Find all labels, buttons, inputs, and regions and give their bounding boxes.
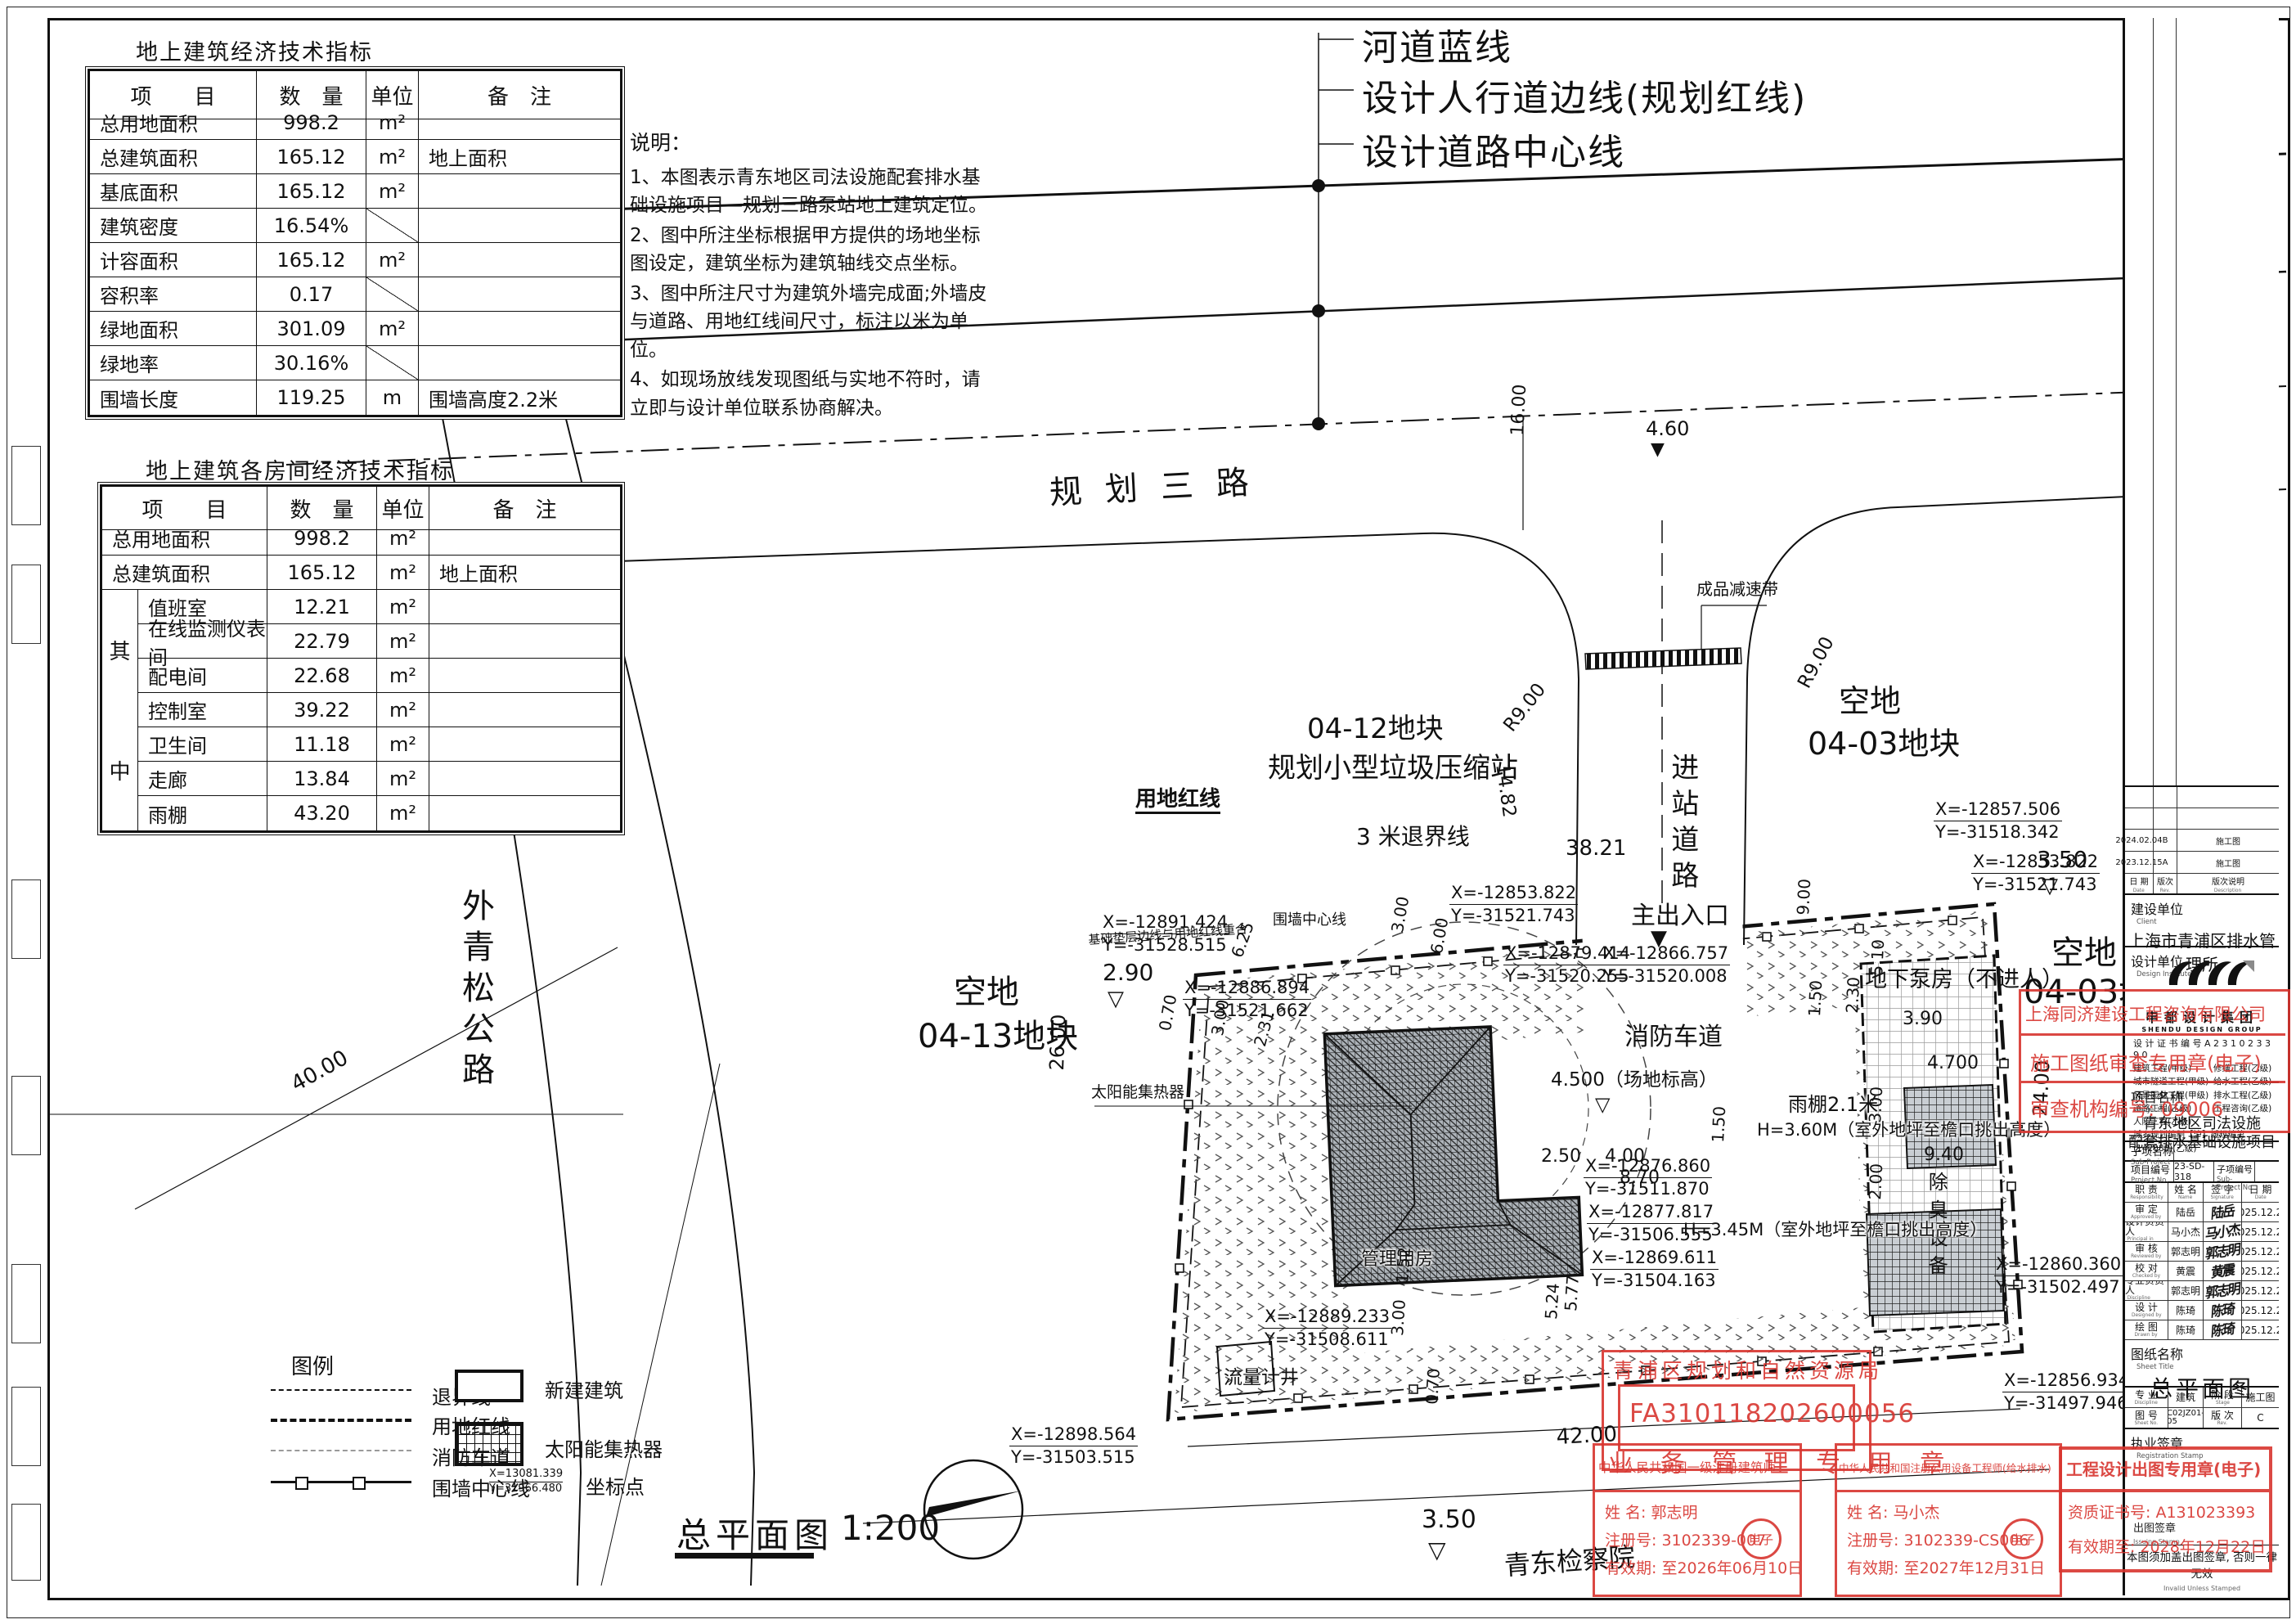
personnel-date: 2025.12.29	[2242, 1281, 2279, 1300]
line-label: 设计道路中心线	[1362, 123, 1625, 175]
table-cell: 绿地率	[90, 346, 257, 380]
mep-valid: 有效期: 至2027年12月31日	[1847, 1556, 2045, 1578]
personnel-role: 设 计Designed by	[2125, 1301, 2168, 1320]
group-cell: 其中	[102, 590, 138, 830]
table-cell: 总用地面积	[102, 521, 267, 556]
mep-header: 中华人民共和国注册公用设备工程师(给水排水)	[1839, 1460, 2051, 1475]
table-cell	[419, 174, 620, 209]
table-cell: m²	[377, 796, 429, 830]
revision-rev: A	[2154, 852, 2177, 873]
client-section: 建设单位 Client 上海市青浦区排水管理所	[2125, 895, 2279, 947]
personnel-row: 审 核Reviewed by郭志明郭志明2025.12.29	[2125, 1242, 2279, 1262]
revision-desc: 施工图	[2177, 830, 2279, 851]
legend-label: 坐标点	[586, 1471, 645, 1500]
line-label: 设计人行道边线(规划红线)	[1362, 69, 1807, 121]
table-cell: 雨棚	[138, 796, 267, 830]
revision-row: 2023.12.15A施工图	[2125, 852, 2279, 874]
legend-line-dashedgray	[271, 1450, 411, 1451]
signature-scribble: 陈琦	[2211, 1302, 2235, 1318]
table-cell	[366, 346, 419, 380]
drawing-title: 总平面图	[676, 1508, 833, 1558]
table-cell: 地上面积	[429, 556, 620, 590]
revision-date: 2024.02.04	[2125, 830, 2154, 851]
table-cell	[429, 727, 620, 762]
personnel-name: 黄震	[2168, 1262, 2204, 1280]
personnel-signature: 郭志明	[2204, 1281, 2242, 1300]
table-cell: m²	[377, 521, 429, 556]
review-company: 上海同济建设工程咨询有限公司	[2025, 1001, 2266, 1026]
review-title: 施工图纸审查专用章(电子)	[2030, 1047, 2262, 1076]
signature-scribble: 郭志明	[2205, 1242, 2240, 1260]
note-item: 1、本图表示青东地区司法设施配套排水基础设施项目—规划三路泵站地上建筑定位。	[630, 164, 988, 220]
table-cell: 总用地面积	[90, 106, 257, 140]
legend-line-dashdot2	[271, 1419, 411, 1422]
personnel-row: 设计负责人Principal in charge马小杰马小杰2025.12.29	[2125, 1222, 2279, 1242]
revision-row-empty	[2125, 787, 2279, 808]
table-cell: 卫生间	[138, 727, 267, 762]
output-seal-cert: 资质证书号: A131023393	[2068, 1500, 2255, 1523]
table-cell: 绿地面积	[90, 312, 257, 346]
signature-scribble: 黄震	[2211, 1262, 2235, 1279]
table-cell: 总建筑面积	[102, 556, 267, 590]
table-cell	[366, 209, 419, 243]
sheet-title-section: 图纸名称 Sheet Title 总平面图	[2125, 1340, 2279, 1388]
table-cell: 围墙高度2.2米	[419, 380, 620, 415]
personnel-row: 审 定Approved by陆岳陆岳2025.12.29	[2125, 1203, 2279, 1222]
table-cell: m²	[377, 556, 429, 590]
review-number: 审查机构编号: 09006	[2030, 1093, 2223, 1122]
table-cell: 165.12	[267, 556, 377, 590]
legend-swatch-building	[455, 1370, 523, 1402]
entrance-paving	[1582, 906, 1746, 1064]
table-cell: 总建筑面积	[90, 140, 257, 174]
table-cell	[419, 277, 620, 312]
personnel-date: 2025.12.29	[2242, 1222, 2279, 1241]
note-item: 2、图中所注坐标根据甲方提供的场地坐标图设定，建筑坐标为建筑轴线交点坐标。	[630, 222, 988, 278]
revision-header: 日 期Date 版次Rev. 版次说明Description	[2125, 874, 2279, 895]
signature-scribble: 郭志明	[2205, 1281, 2240, 1299]
table-cell: 301.09	[257, 312, 366, 346]
table-cell: 围墙长度	[90, 380, 257, 415]
note-item: 3、图中所注尺寸为建筑外墙完成面;外墙皮与道路、用地红线间尺寸，标注以米为单位。	[630, 280, 988, 365]
personnel-name: 郭志明	[2168, 1242, 2204, 1261]
table-cell: m²	[377, 762, 429, 796]
table-cell: 13.84	[267, 762, 377, 796]
personnel-row: 专业负责人Discipline Responsible郭志明郭志明2025.12…	[2125, 1281, 2279, 1301]
left-road-curves	[49, 245, 754, 1586]
table-cell: 16.54%	[257, 209, 366, 243]
architect-header: 中华人民共和国一级注册建筑师	[1598, 1458, 1776, 1476]
table-cell: m²	[377, 693, 429, 727]
planning-agency: 青浦区规划和自然资源局	[1613, 1355, 1883, 1384]
table-cell: 165.12	[257, 140, 366, 174]
personnel-date: 2025.12.29	[2242, 1203, 2279, 1221]
table-cell: 43.20	[267, 796, 377, 830]
legend-label: 新建建筑	[545, 1374, 623, 1403]
line-label: 河道蓝线	[1362, 18, 1512, 70]
personnel-role: 审 核Reviewed by	[2125, 1242, 2168, 1261]
personnel-row: 绘 图Drawn by陈琦陈琦2025.12.29	[2125, 1320, 2279, 1340]
table-cell	[429, 624, 620, 659]
drawing-sheet: 地上建筑经济技术指标 项 目数 量单位备 注总用地面积998.2m²总建筑面积1…	[0, 0, 2296, 1624]
table-cell: 地上面积	[419, 140, 620, 174]
table-cell	[429, 590, 620, 624]
signature-scribble: 马小杰	[2205, 1222, 2240, 1240]
table-cell: 配电间	[138, 659, 267, 693]
revision-row-empty	[2125, 808, 2279, 830]
fence-post-icon	[353, 1477, 366, 1490]
table-cell: m²	[377, 590, 429, 624]
table-cell: 39.22	[267, 693, 377, 727]
room-table: 项 目数 量单位备 注总用地面积998.2m²总建筑面积165.12m²地上面积…	[100, 484, 622, 833]
personnel-name: 陆岳	[2168, 1203, 2204, 1221]
table-cell: 12.21	[267, 590, 377, 624]
personnel-header-cell: 职 责Responsibility	[2125, 1183, 2168, 1202]
personnel-role: 设计负责人Principal in charge	[2125, 1222, 2168, 1241]
output-seal-title: 工程设计出图专用章(电子)	[2066, 1456, 2261, 1480]
project-no-section: 项目编号Project No. 23-SD-318 子项编号Sub-Projec…	[2125, 1162, 2279, 1183]
revision-row: 2024.02.04B施工图	[2125, 830, 2279, 852]
note-item: 4、如现场放线发现图纸与实地不符时，请立即与设计单位联系协商解决。	[630, 366, 988, 422]
table-cell: 走廊	[138, 762, 267, 796]
signature-scribble: 陆岳	[2211, 1203, 2235, 1220]
table-cell: 22.68	[267, 659, 377, 693]
table-cell	[419, 312, 620, 346]
table-cell: 计容面积	[90, 243, 257, 277]
output-seal-valid: 有效期至: 2028年12月22日	[2068, 1535, 2266, 1557]
table-cell: 165.12	[257, 174, 366, 209]
room-table-title: 地上建筑各房间经济技术指标	[146, 453, 454, 485]
speed-bump	[1585, 648, 1741, 669]
personnel-signature: 陈琦	[2204, 1301, 2242, 1320]
fence-post-icon	[295, 1477, 308, 1490]
revision-date: 2023.12.15	[2125, 852, 2154, 873]
table-cell	[419, 209, 620, 243]
notes-title: 说明：	[630, 128, 988, 159]
personnel-role: 校 对Checked by	[2125, 1262, 2168, 1280]
personnel-role: 审 定Approved by	[2125, 1203, 2168, 1221]
management-building	[1324, 1023, 1582, 1286]
table-cell: 0.17	[257, 277, 366, 312]
revision-empty-area	[2125, 18, 2279, 787]
table-cell: m²	[366, 174, 419, 209]
table-cell: 119.25	[257, 380, 366, 415]
table-cell	[429, 659, 620, 693]
personnel-role: 绘 图Drawn by	[2125, 1320, 2168, 1339]
legend-title: 图例	[291, 1350, 334, 1380]
table-cell: 容积率	[90, 277, 257, 312]
personnel-date: 2025.12.29	[2242, 1301, 2279, 1320]
personnel-name: 陈琦	[2168, 1320, 2204, 1339]
personnel-name: 郭志明	[2168, 1281, 2204, 1300]
personnel-signature: 陆岳	[2204, 1203, 2242, 1221]
drawing-scale: 1:200	[841, 1508, 940, 1548]
legend-label: 太阳能集热器	[545, 1433, 663, 1462]
personnel-signature: 郭志明	[2204, 1242, 2242, 1261]
personnel-date: 2025.12.29	[2242, 1242, 2279, 1261]
table-cell	[419, 346, 620, 380]
rev-value: C	[2242, 1408, 2279, 1428]
planning-number: FA310118202600056	[1629, 1399, 1915, 1428]
table-cell: 998.2	[267, 521, 377, 556]
table-cell: m²	[366, 312, 419, 346]
mep-name: 姓 名: 马小杰	[1847, 1500, 1940, 1523]
table-cell: 22.79	[267, 624, 377, 659]
personnel-row: 设 计Designed by陈琦陈琦2025.12.29	[2125, 1301, 2279, 1320]
table-cell	[429, 693, 620, 727]
table-cell: 165.12	[257, 243, 366, 277]
table-cell	[429, 521, 620, 556]
table-cell	[366, 277, 419, 312]
canopy-a	[1904, 1085, 1996, 1168]
table-cell: m	[366, 380, 419, 415]
personnel-date: 2025.12.29	[2242, 1320, 2279, 1339]
table-cell	[419, 243, 620, 277]
architect-name: 姓 名: 郭志明	[1605, 1500, 1698, 1523]
canopy-b	[1867, 1209, 2004, 1316]
personnel-name: 陈琦	[2168, 1301, 2204, 1320]
table-cell: m²	[366, 106, 419, 140]
table-cell: 30.16%	[257, 346, 366, 380]
table-cell: 控制室	[138, 693, 267, 727]
title-block: 2024.02.04B施工图2023.12.15A施工图 日 期Date 版次R…	[2123, 18, 2279, 1595]
personnel-name: 马小杰	[2168, 1222, 2204, 1241]
table-cell: m²	[377, 659, 429, 693]
personnel-signature: 黄震	[2204, 1262, 2242, 1280]
personnel-row: 校 对Checked by黄震黄震2025.12.29	[2125, 1262, 2279, 1281]
signature-scribble: 陈琦	[2211, 1321, 2235, 1338]
table-cell: 在线监测仪表间	[138, 624, 267, 659]
personnel-header: 职 责Responsibility姓 名Name签 字Signature日 期D…	[2125, 1183, 2279, 1203]
design-logo	[2164, 956, 2254, 990]
legend-line-dashdot1	[271, 1389, 411, 1391]
sheet-no: C02JZ01-05	[2168, 1408, 2204, 1428]
personnel-header-cell: 姓 名Name	[2168, 1183, 2204, 1202]
personnel-date: 2025.12.29	[2242, 1262, 2279, 1280]
table-cell	[429, 796, 620, 830]
architect-etag: 电子	[1741, 1518, 1782, 1559]
personnel-role: 专业负责人Discipline Responsible	[2125, 1281, 2168, 1300]
architect-valid: 有效期: 至2026年06月10日	[1605, 1556, 1803, 1578]
table-cell: m²	[366, 140, 419, 174]
notes-block: 说明： 1、本图表示青东地区司法设施配套排水基础设施项目—规划三路泵站地上建筑定…	[630, 128, 988, 424]
table-cell: 11.18	[267, 727, 377, 762]
drawing-title-underline	[675, 1553, 814, 1559]
table-cell	[419, 106, 620, 140]
legend-line-fence	[271, 1481, 411, 1483]
revision-desc: 施工图	[2177, 852, 2279, 873]
table-cell: m²	[366, 243, 419, 277]
table-cell: 998.2	[257, 106, 366, 140]
subproject-section: 子项名称Sub-Project	[2125, 1142, 2279, 1162]
econ-table-title: 地上建筑经济技术指标	[136, 34, 373, 66]
mep-etag: 电子	[2002, 1518, 2043, 1559]
revision-rev: B	[2154, 830, 2177, 851]
sheet-no-row: 图 号Sheet No. C02JZ01-05 版 次Rev. C	[2125, 1408, 2279, 1429]
legend-swatch-solar	[455, 1422, 523, 1466]
table-cell	[429, 762, 620, 796]
table-cell: 建筑密度	[90, 209, 257, 243]
personnel-signature: 陈琦	[2204, 1320, 2242, 1339]
econ-table: 项 目数 量单位备 注总用地面积998.2m²总建筑面积165.12m²地上面积…	[88, 69, 622, 417]
legend-coord-example: X=13081.339Y=31966.480	[489, 1468, 563, 1496]
table-cell: m²	[377, 624, 429, 659]
table-cell: m²	[377, 727, 429, 762]
project-no: 23-SD-318	[2173, 1162, 2213, 1181]
personnel-signature: 马小杰	[2204, 1222, 2242, 1241]
table-cell: 基底面积	[90, 174, 257, 209]
